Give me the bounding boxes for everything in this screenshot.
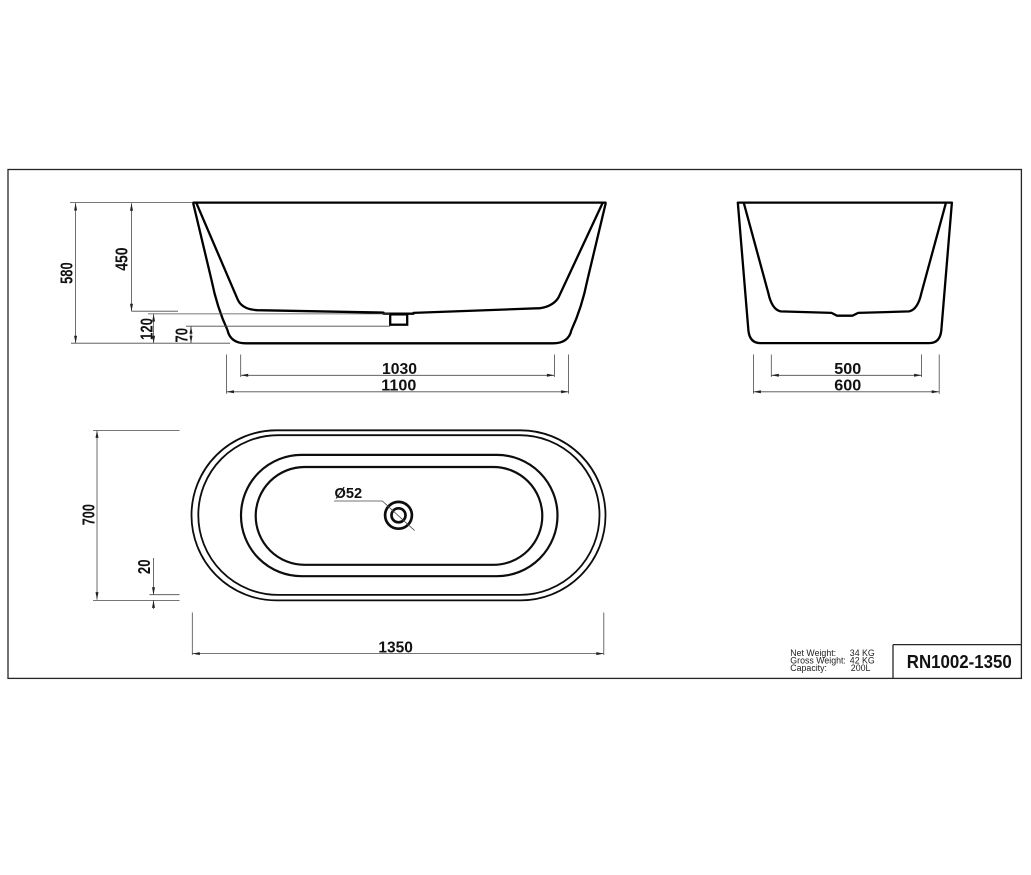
svg-text:500: 500 — [834, 361, 861, 378]
svg-text:70: 70 — [171, 328, 191, 343]
svg-text:RN1002-1350: RN1002-1350 — [907, 651, 1012, 672]
svg-text:1100: 1100 — [381, 377, 416, 394]
svg-text:20: 20 — [134, 559, 154, 574]
svg-text:Capacity:: Capacity: — [790, 663, 827, 673]
svg-text:1030: 1030 — [382, 361, 417, 378]
svg-text:600: 600 — [834, 377, 861, 394]
svg-text:450: 450 — [112, 247, 132, 270]
svg-text:700: 700 — [79, 504, 99, 525]
svg-text:580: 580 — [57, 262, 77, 284]
svg-text:200L: 200L — [851, 663, 871, 673]
svg-text:Ø52: Ø52 — [335, 486, 363, 502]
svg-text:1350: 1350 — [378, 639, 413, 656]
